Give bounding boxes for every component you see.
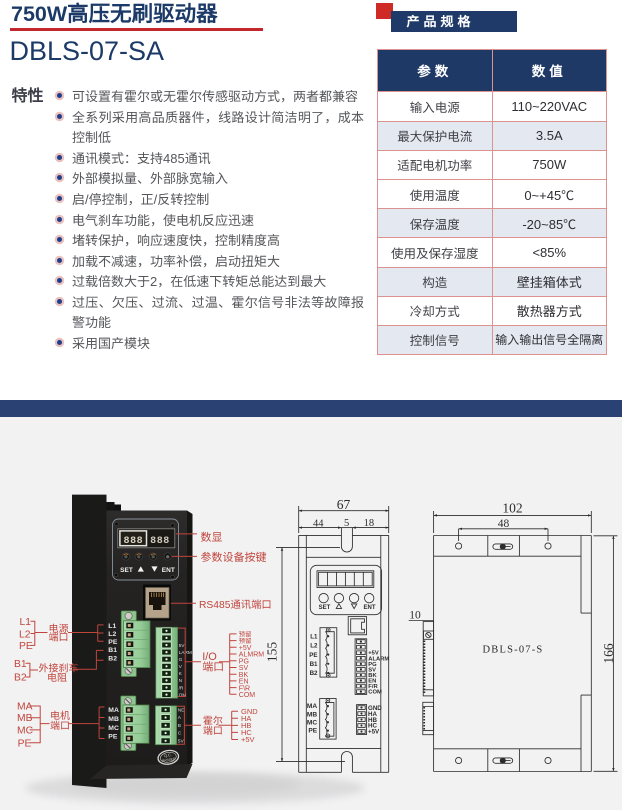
- svg-text:端口: 端口: [50, 720, 70, 732]
- svg-text:155: 155: [265, 642, 280, 663]
- svg-text:MB: MB: [307, 711, 317, 718]
- svg-text:102: 102: [502, 501, 522, 516]
- svg-text:44: 44: [313, 518, 324, 529]
- svg-text:18: 18: [364, 518, 375, 529]
- svg-text:ENT: ENT: [162, 567, 175, 574]
- svg-text:888: 888: [150, 536, 170, 547]
- svg-text:MA: MA: [17, 702, 33, 713]
- svg-text:B2: B2: [108, 656, 117, 663]
- svg-text:+5V: +5V: [368, 729, 380, 736]
- svg-text:B1: B1: [14, 659, 27, 670]
- svg-text:B1: B1: [310, 661, 318, 668]
- svg-text:PE: PE: [19, 641, 33, 652]
- svg-text:PE: PE: [108, 734, 118, 741]
- svg-text:N: N: [179, 678, 183, 684]
- svg-text:PE: PE: [108, 639, 118, 646]
- svg-text:166: 166: [601, 643, 616, 664]
- svg-text:MC: MC: [307, 719, 317, 726]
- svg-text:L1: L1: [108, 623, 116, 630]
- svg-text:COM: COM: [368, 690, 382, 696]
- svg-text:G: G: [179, 657, 183, 663]
- svg-text:COM: COM: [239, 692, 256, 699]
- svg-text:端口: 端口: [203, 725, 223, 737]
- svg-text:L1: L1: [310, 633, 318, 640]
- svg-text:B2: B2: [14, 673, 27, 684]
- svg-text:C: C: [178, 731, 182, 737]
- svg-text:MC: MC: [17, 725, 34, 736]
- svg-text:端口: 端口: [49, 632, 69, 644]
- svg-text:L2: L2: [310, 643, 318, 650]
- svg-text:5V: 5V: [179, 643, 186, 649]
- svg-text:SET: SET: [120, 567, 133, 574]
- svg-text:/R: /R: [179, 685, 184, 691]
- svg-text:预留: 预留: [239, 637, 252, 645]
- svg-text:B2: B2: [310, 670, 318, 677]
- svg-text:DBLS-07-S: DBLS-07-S: [483, 645, 544, 656]
- svg-text:MC: MC: [108, 725, 119, 732]
- svg-text:端口: 端口: [202, 661, 224, 674]
- svg-text:MB: MB: [108, 716, 119, 723]
- svg-text:L1: L1: [20, 617, 32, 628]
- svg-text:5V: 5V: [178, 739, 185, 745]
- svg-text:10: 10: [409, 610, 421, 622]
- svg-text:48: 48: [498, 518, 510, 530]
- svg-text:PE: PE: [18, 738, 32, 749]
- svg-text:PE: PE: [309, 652, 317, 659]
- svg-text:B: B: [178, 723, 181, 729]
- svg-text:888: 888: [123, 536, 143, 547]
- svg-text:SET: SET: [319, 605, 331, 611]
- svg-text:ENT: ENT: [364, 605, 376, 611]
- svg-text:参数设备按键: 参数设备按键: [201, 551, 267, 564]
- svg-text:数显: 数显: [201, 531, 223, 544]
- svg-text:电阻: 电阻: [47, 672, 67, 684]
- svg-text:L2: L2: [108, 631, 116, 638]
- svg-text:MA: MA: [108, 707, 119, 714]
- svg-text:5: 5: [344, 518, 349, 529]
- svg-text:MA: MA: [307, 703, 317, 710]
- svg-text:L2: L2: [19, 629, 31, 640]
- svg-text:+5V: +5V: [241, 735, 255, 744]
- svg-text:RS485通讯端口: RS485通讯端口: [199, 599, 272, 611]
- svg-text:PE: PE: [308, 728, 317, 735]
- svg-text:MB: MB: [17, 713, 33, 724]
- svg-text:67: 67: [337, 497, 351, 512]
- svg-text:B1: B1: [108, 647, 117, 654]
